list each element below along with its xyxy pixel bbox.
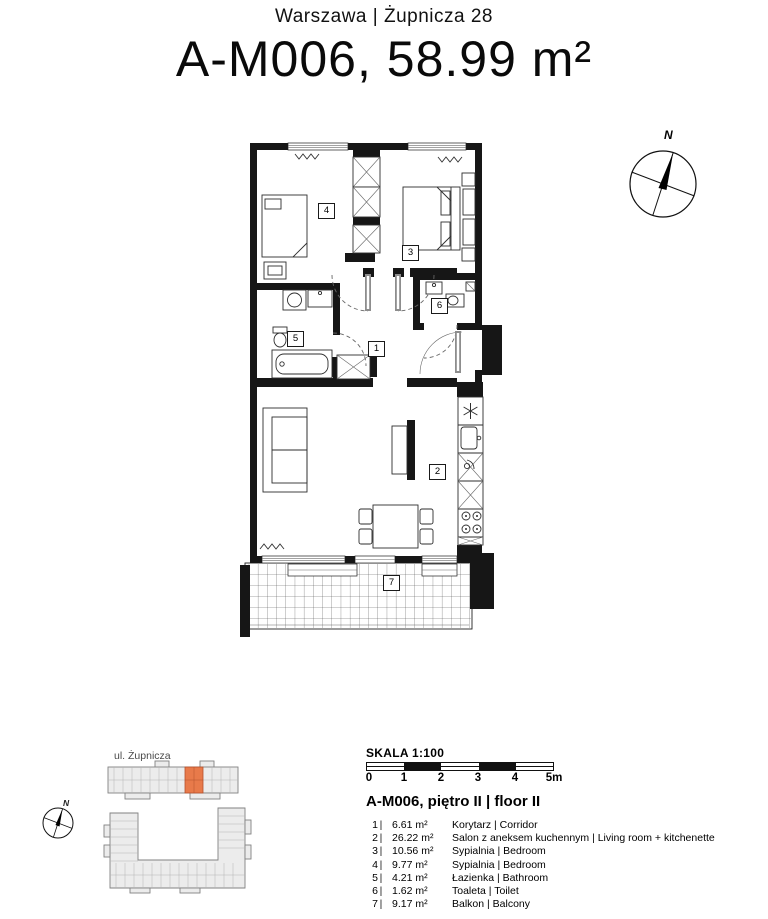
legend-row: 1|6.61 m²Korytarz | Corridor (366, 819, 756, 832)
legend-room-area: 6.61 m² (384, 819, 444, 832)
legend-room-number: 3 (366, 845, 378, 858)
scale-ticks: 0 1 2 3 4 5m (366, 772, 566, 786)
page-title: A-M006, 58.99 m² (0, 30, 768, 88)
scale-tick: 2 (438, 772, 444, 784)
legend-room-name: Salon z aneksem kuchennym | Living room … (444, 832, 756, 845)
scale-tick: 3 (475, 772, 481, 784)
plan-room-label-4: 4 (318, 203, 335, 219)
legend-row: 6|1.62 m²Toaleta | Toilet (366, 885, 756, 898)
plan-room-label-3: 3 (402, 245, 419, 261)
floor-plan-page: { "header": { "location": "Warszawa | Żu… (0, 0, 768, 919)
scale-label: SKALA 1:100 (366, 746, 566, 760)
balcony (240, 553, 494, 637)
legend-room-number: 1 (366, 819, 378, 832)
scale-tick: 4 (512, 772, 518, 784)
plan-room-label-1: 1 (368, 341, 385, 357)
legend-room-number: 5 (366, 872, 378, 885)
scale-bar (366, 762, 554, 771)
bedroom4-furniture (262, 195, 307, 279)
legend-title: A-M006, piętro II | floor II (366, 793, 756, 810)
scale-bar-block: SKALA 1:100 0 1 2 3 4 5m (366, 746, 566, 760)
plan-room-label-6: 6 (431, 298, 448, 314)
site-building-south (104, 808, 251, 893)
street-label: ul. Żupnicza (114, 749, 171, 762)
legend-room-number: 4 (366, 859, 378, 872)
legend-room-number: 2 (366, 832, 378, 845)
site-compass-needle (56, 809, 63, 827)
legend-row: 4|9.77 m²Sypialnia | Bedroom (366, 859, 756, 872)
legend-room-area: 10.56 m² (384, 845, 444, 858)
legend-row: 3|10.56 m²Sypialnia | Bedroom (366, 845, 756, 858)
site-compass-rose: N (43, 798, 73, 838)
floor-plan: 1 2 3 4 5 6 7 (240, 135, 540, 645)
kitchenette (458, 397, 483, 545)
plan-room-label-5: 5 (287, 331, 304, 347)
scale-tick: 0 (366, 772, 372, 784)
legend-row: 7|9.17 m²Balkon | Balcony (366, 898, 756, 911)
legend-room-number: 6 (366, 885, 378, 898)
legend-room-name: Balkon | Balcony (444, 898, 756, 911)
legend-room-area: 1.62 m² (384, 885, 444, 898)
location-subtitle: Warszawa | Żupnicza 28 (0, 6, 768, 28)
scale-tick: 1 (401, 772, 407, 784)
compass-north-label: N (664, 128, 673, 142)
legend-room-area: 26.22 m² (384, 832, 444, 845)
plan-room-label-7: 7 (383, 575, 400, 591)
legend-room-area: 9.77 m² (384, 859, 444, 872)
legend-room-area: 9.17 m² (384, 898, 444, 911)
living-room-furniture (263, 408, 433, 548)
legend-row: 2|26.22 m²Salon z aneksem kuchennym | Li… (366, 832, 756, 845)
scale-tick: 5m (546, 772, 563, 784)
legend-room-name: Sypialnia | Bedroom (444, 845, 756, 858)
site-plan: ul. Żupnicza (30, 745, 345, 917)
plan-room-label-2: 2 (429, 464, 446, 480)
compass-needle (659, 153, 674, 190)
legend-room-name: Łazienka | Bathroom (444, 872, 756, 885)
legend-row: 5|4.21 m²Łazienka | Bathroom (366, 872, 756, 885)
legend-room-name: Korytarz | Corridor (444, 819, 756, 832)
legend-room-area: 4.21 m² (384, 872, 444, 885)
legend-room-number: 7 (366, 898, 378, 911)
floor-plan-drawing (240, 135, 540, 645)
site-building-north (108, 761, 238, 799)
room-legend: A-M006, piętro II | floor II 1|6.61 m²Ko… (366, 793, 756, 911)
site-compass-north-label: N (63, 798, 70, 808)
legend-room-name: Sypialnia | Bedroom (444, 859, 756, 872)
compass-rose (626, 143, 706, 227)
legend-room-name: Toaleta | Toilet (444, 885, 756, 898)
